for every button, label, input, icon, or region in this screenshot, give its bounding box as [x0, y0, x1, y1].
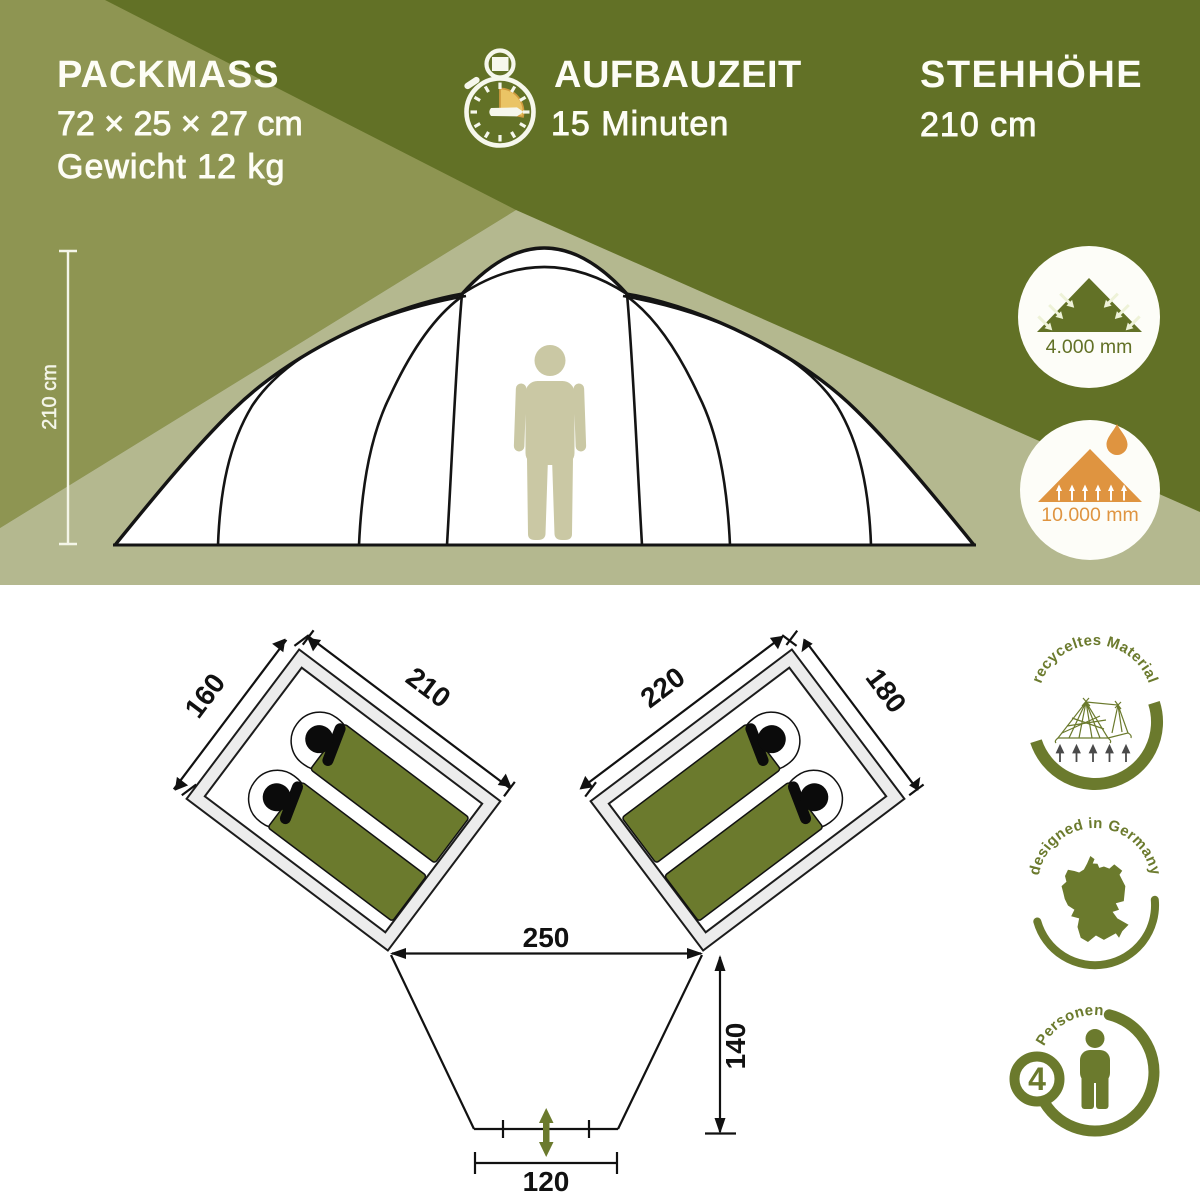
- svg-text:4.000 mm: 4.000 mm: [1046, 336, 1133, 358]
- svg-text:210 cm: 210 cm: [39, 364, 61, 430]
- svg-text:140: 140: [720, 1023, 751, 1070]
- svg-text:Gewicht 12 kg: Gewicht 12 kg: [57, 148, 285, 186]
- svg-text:250: 250: [523, 922, 570, 953]
- svg-text:15 Minuten: 15 Minuten: [551, 105, 729, 143]
- svg-text:72 × 25 × 27 cm: 72 × 25 × 27 cm: [57, 105, 303, 143]
- svg-text:AUFBAUZEIT: AUFBAUZEIT: [554, 54, 802, 96]
- svg-text:STEHHÖHE: STEHHÖHE: [920, 53, 1143, 96]
- svg-text:10.000 mm: 10.000 mm: [1041, 504, 1139, 526]
- svg-text:4: 4: [1028, 1061, 1046, 1097]
- svg-text:120: 120: [523, 1166, 570, 1197]
- svg-text:210 cm: 210 cm: [920, 106, 1038, 144]
- svg-text:PACKMASS: PACKMASS: [57, 54, 280, 96]
